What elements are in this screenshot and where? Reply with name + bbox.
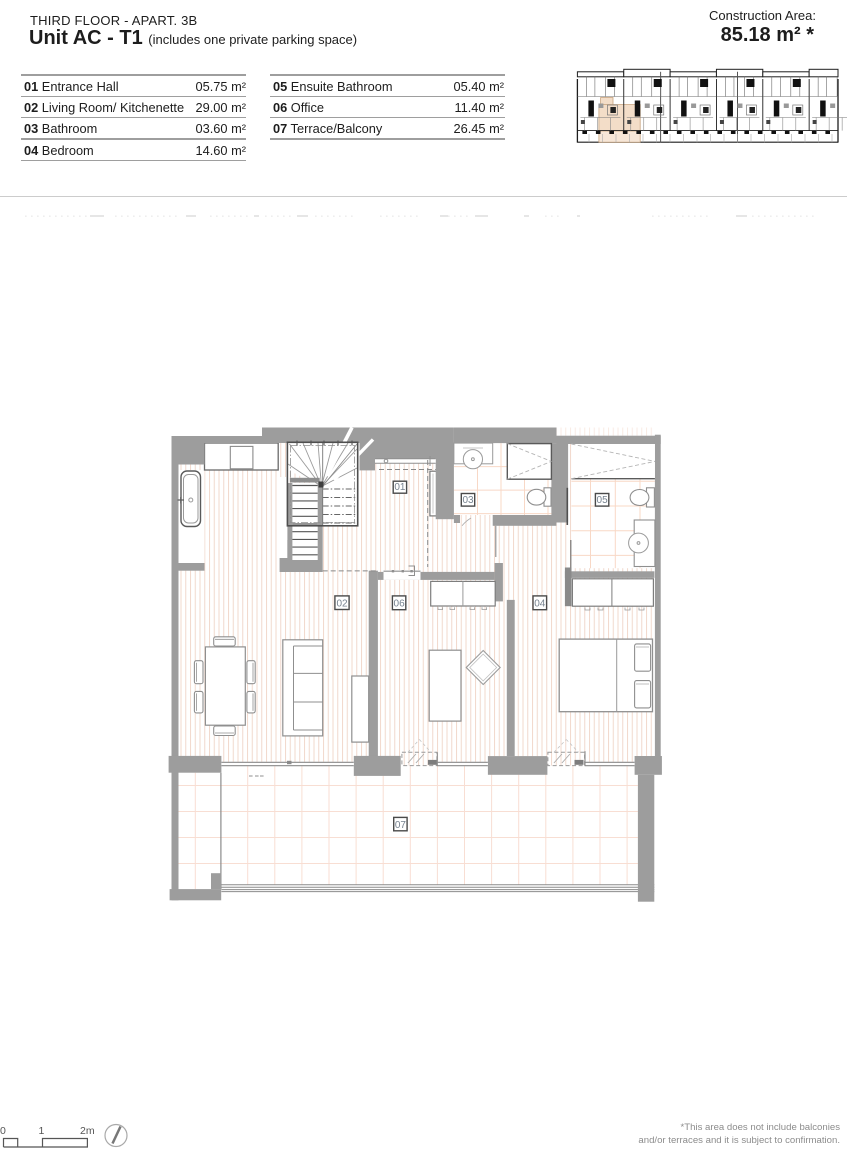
svg-text:06: 06 xyxy=(394,599,406,610)
svg-text:01: 01 xyxy=(394,482,406,493)
svg-text:1: 1 xyxy=(39,1125,45,1137)
svg-text:04: 04 xyxy=(534,599,546,610)
svg-text:02: 02 xyxy=(336,599,348,610)
svg-text:07: 07 xyxy=(395,820,407,831)
svg-text:2m: 2m xyxy=(80,1125,95,1137)
svg-text:03: 03 xyxy=(462,495,474,506)
svg-text:05: 05 xyxy=(597,495,609,506)
svg-text:0: 0 xyxy=(0,1125,6,1137)
